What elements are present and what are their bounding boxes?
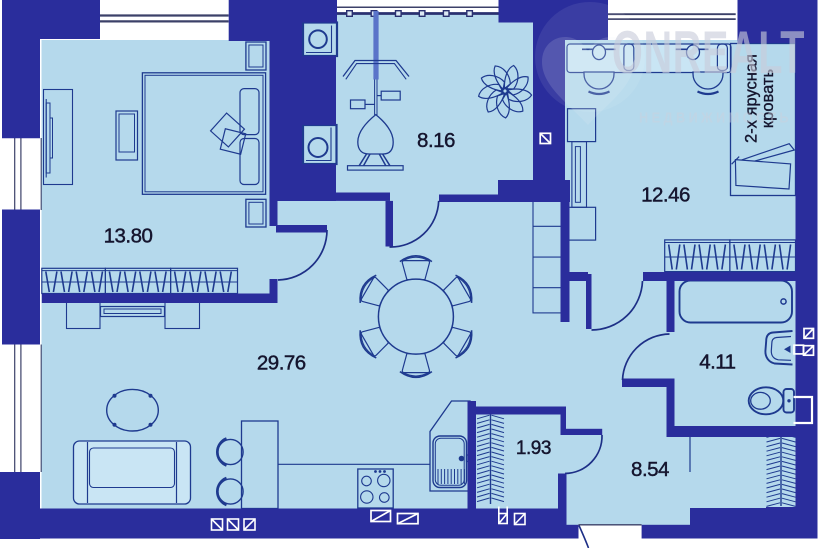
svg-text:ONREALT: ONREALT (612, 19, 805, 86)
svg-text:13.80: 13.80 (104, 224, 153, 247)
svg-text:12.46: 12.46 (641, 183, 690, 206)
svg-text:8.16: 8.16 (417, 129, 455, 152)
svg-text:НЕДВИЖИМОСТЬ: НЕДВИЖИМОСТЬ (639, 108, 792, 125)
svg-text:8.54: 8.54 (631, 458, 669, 481)
svg-text:4.11: 4.11 (699, 351, 735, 374)
svg-text:1.93: 1.93 (516, 438, 551, 459)
svg-text:29.76: 29.76 (257, 352, 306, 375)
